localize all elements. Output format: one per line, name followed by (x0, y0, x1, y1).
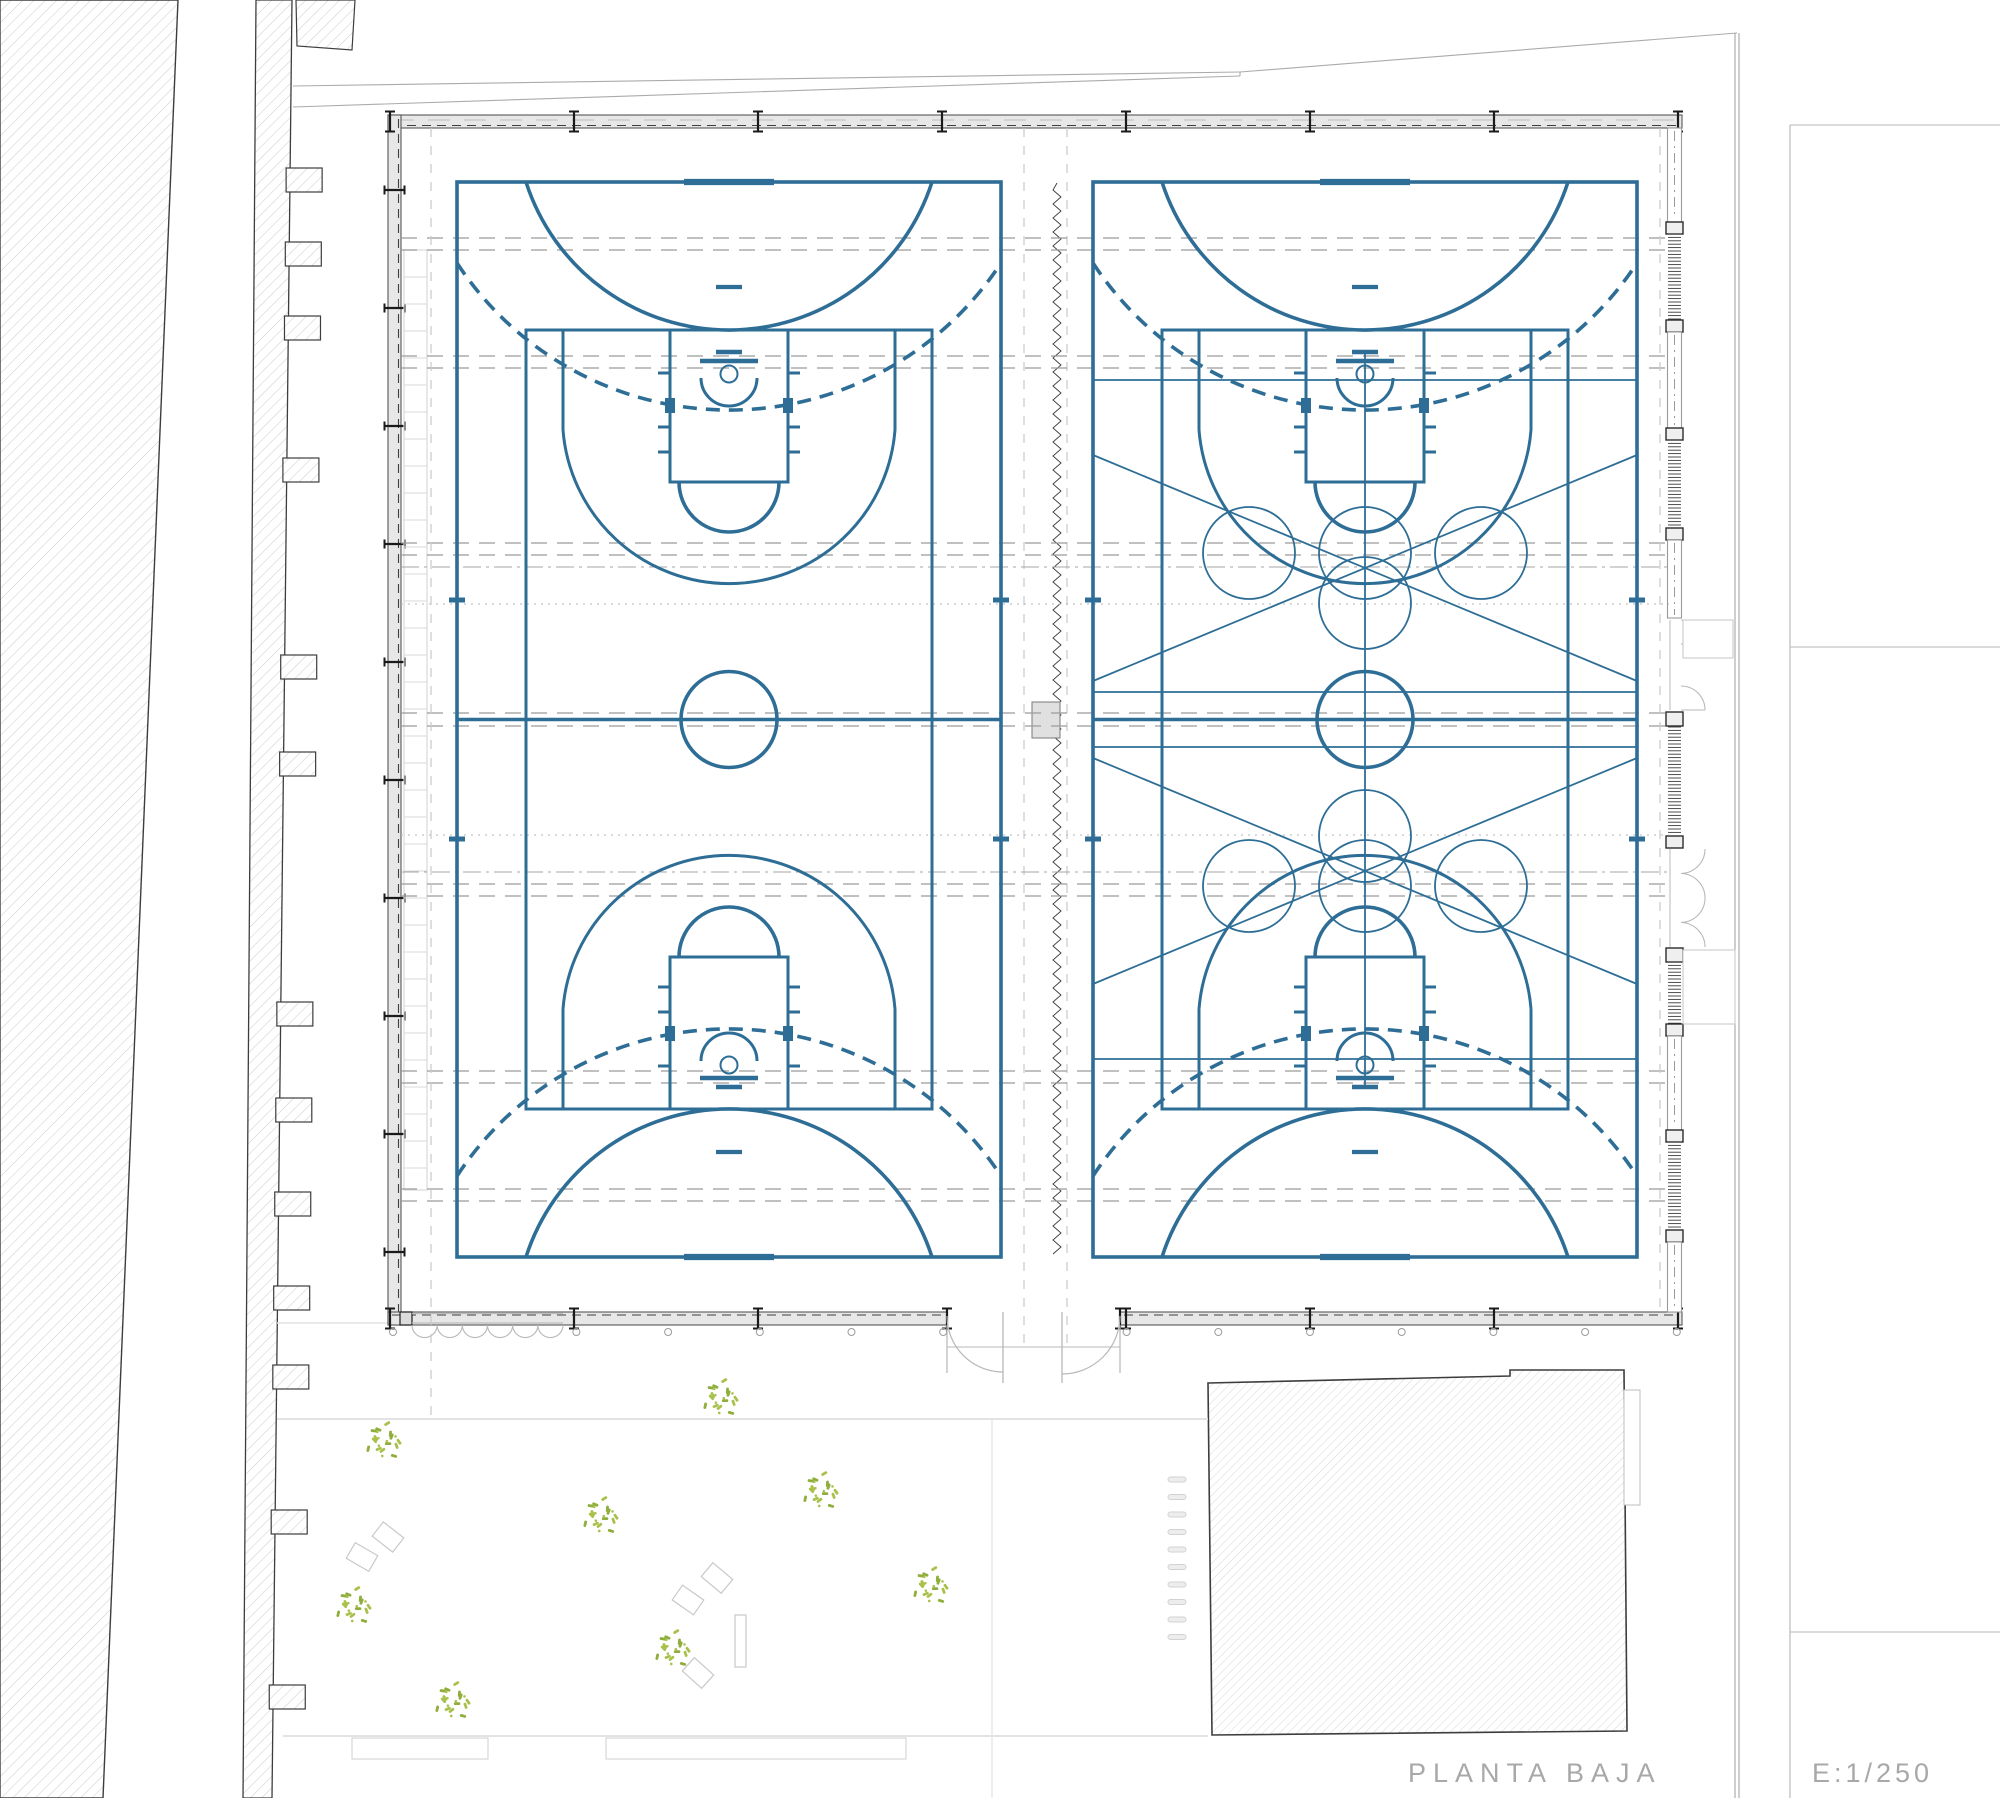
stair-tread-mark (1168, 1600, 1186, 1605)
party-wall-buttress (277, 1002, 313, 1026)
tree-foliage-dot (928, 1600, 931, 1603)
post-base-dot (390, 1329, 397, 1336)
tree-foliage-stroke (722, 1399, 728, 1402)
tree-foliage-stroke (674, 1650, 680, 1653)
tree-foliage-dot (665, 1639, 668, 1642)
tree-foliage-dot (813, 1481, 816, 1484)
goal-area-dome-bottom (1162, 1109, 1568, 1257)
party-wall-buttress (274, 1286, 310, 1310)
tree-foliage-stroke (608, 1529, 615, 1533)
door-swing-arc (1062, 1316, 1120, 1374)
lane-block (1301, 398, 1311, 413)
goal-area-dome-bottom (526, 1109, 932, 1257)
folding-door-leaf-arc (513, 1325, 538, 1338)
tree-foliage-stroke (463, 1702, 468, 1709)
party-wall-buttress (276, 1098, 312, 1122)
tree-foliage-stroke (453, 1681, 460, 1687)
stair-tread-mark (1168, 1617, 1186, 1622)
bench-symbol (372, 1522, 404, 1552)
existing-building-southeast-hatch (1208, 1370, 1627, 1735)
post-base-dot (756, 1329, 763, 1336)
tree-foliage-dot (378, 1444, 381, 1447)
lane-block (1301, 1026, 1311, 1041)
overlay-circle (1203, 840, 1295, 932)
court-hall-west (449, 182, 1009, 1257)
tree-foliage-dot (351, 1620, 354, 1623)
tree-foliage-dot (683, 1643, 686, 1646)
street-edge-line (293, 76, 1240, 107)
tree-foliage-dot (347, 1602, 350, 1605)
bifold-door-arc (1681, 898, 1705, 923)
tree-foliage-dot (713, 1388, 716, 1391)
post-base-dot (1673, 1329, 1680, 1336)
tree-symbol (803, 1471, 839, 1508)
tree-foliage-dot (356, 1605, 359, 1608)
tree-foliage-dot (463, 1695, 466, 1698)
tree-foliage-dot (594, 1512, 597, 1515)
tree-foliage-stroke (394, 1442, 399, 1449)
tree-foliage-stroke (435, 1705, 439, 1712)
tree-foliage-stroke (703, 1402, 707, 1409)
wall-column-block (1666, 320, 1683, 332)
tree-foliage-stroke (913, 1590, 917, 1597)
party-wall-buttress (280, 752, 316, 776)
bleacher-strip (404, 250, 427, 1190)
tree-foliage-stroke (611, 1517, 616, 1524)
overlay-circle (1203, 507, 1295, 599)
tree-foliage-dot (394, 1435, 397, 1438)
tree-foliage-dot (715, 1401, 718, 1404)
tree-foliage-stroke (941, 1587, 946, 1594)
overlay-circle (1435, 840, 1527, 932)
tree-foliage-dot (823, 1490, 826, 1493)
tree-foliage-dot (941, 1580, 944, 1583)
tree-foliage-dot (381, 1455, 384, 1458)
tree-foliage-stroke (680, 1662, 687, 1666)
wall-north (388, 115, 1682, 128)
tree-foliage-dot (718, 1412, 721, 1415)
stair-tread-mark (1168, 1477, 1186, 1482)
post-base-dot (1307, 1329, 1314, 1336)
tree-foliage-stroke (731, 1399, 736, 1406)
bifold-door-arc (1681, 874, 1705, 899)
tree-foliage-dot (666, 1645, 669, 1648)
tree-symbol (366, 1421, 402, 1458)
tree-foliage-dot (446, 1697, 449, 1700)
door-jamb-block (400, 1312, 412, 1325)
plan-title: PLANTA BAJA (1408, 1758, 1662, 1788)
tree-foliage-dot (667, 1652, 670, 1655)
tree-foliage-dot (455, 1700, 458, 1703)
court-hall-east (1085, 182, 1645, 1257)
three-point-arc (563, 855, 895, 1009)
tree-foliage-dot (925, 1589, 928, 1592)
tree-foliage-stroke (354, 1586, 361, 1592)
tree-foliage-dot (611, 1510, 614, 1513)
tree-foliage-dot (377, 1437, 380, 1440)
door-swing-arc (1681, 686, 1705, 710)
tree-foliage-stroke (931, 1566, 938, 1572)
lane-block (783, 1026, 793, 1041)
planta-baja-drawing: PLANTA BAJA E:1/250 (0, 0, 2000, 1798)
stair-tread-mark (1168, 1635, 1186, 1640)
bench-symbol (346, 1543, 378, 1572)
wall-column-block (1666, 222, 1683, 234)
bifold-door-arc (1681, 923, 1705, 948)
tree-foliage-stroke (601, 1496, 608, 1502)
overlay-circle (1435, 507, 1527, 599)
yard-planter (606, 1738, 906, 1759)
yard-planter (352, 1738, 488, 1759)
neighbor-parcel-left-hatch (0, 0, 178, 1798)
stair-tread-mark (1168, 1495, 1186, 1500)
bench-symbol (735, 1615, 746, 1667)
tree-foliage-dot (445, 1691, 448, 1694)
tree-foliage-dot (364, 1600, 367, 1603)
free-throw-semicircle (679, 907, 779, 957)
tree-foliage-stroke (364, 1607, 369, 1614)
lane-block (1419, 398, 1429, 413)
tree-foliage-dot (450, 1715, 453, 1718)
tree-foliage-stroke (361, 1619, 368, 1623)
tree-foliage-stroke (728, 1411, 735, 1415)
street-edge-line (1240, 33, 1737, 72)
post-base-dot (573, 1329, 580, 1336)
tree-foliage-dot (595, 1519, 598, 1522)
tree-foliage-stroke (683, 1650, 688, 1657)
tree-foliage-stroke (336, 1610, 340, 1617)
stair-tread-mark (1168, 1512, 1186, 1517)
tree-foliage-stroke (821, 1471, 828, 1477)
tree-foliage-stroke (602, 1517, 608, 1520)
neighbor-patch-north (296, 0, 355, 50)
post-base-dot (1490, 1329, 1497, 1336)
tree-foliage-stroke (355, 1607, 361, 1610)
party-wall-buttress (285, 242, 321, 266)
wall-column-block (1666, 712, 1683, 726)
tree-foliage-dot (447, 1704, 450, 1707)
yard-trees-benches (336, 1378, 949, 1718)
party-wall-buttress (284, 316, 320, 340)
wall-column-block (1666, 528, 1683, 540)
goal-area-dome-top (1162, 182, 1568, 330)
wall-column-block (1666, 836, 1683, 848)
wall-column-block (1666, 1230, 1683, 1242)
street-edge-line (293, 72, 1240, 86)
stair-tread-mark (1168, 1582, 1186, 1587)
tree-symbol (703, 1378, 739, 1415)
lane-block (783, 398, 793, 413)
party-wall-buttress (286, 168, 322, 192)
tree-foliage-dot (818, 1505, 821, 1508)
tree-foliage-dot (815, 1494, 818, 1497)
tree-foliage-dot (386, 1440, 389, 1443)
bifold-door-arc (1681, 849, 1705, 874)
tree-foliage-stroke (384, 1421, 391, 1427)
post-base-dot (1215, 1329, 1222, 1336)
tree-foliage-stroke (583, 1520, 587, 1527)
tree-foliage-dot (924, 1582, 927, 1585)
bench-symbol (672, 1585, 704, 1615)
wall-column-block (1666, 1024, 1683, 1036)
wall-south-east (1120, 1312, 1682, 1325)
tree-foliage-dot (831, 1485, 834, 1488)
tree-foliage-dot (933, 1585, 936, 1588)
tree-symbol (655, 1629, 691, 1666)
stair-tread-mark (1168, 1530, 1186, 1535)
door-swing-arc (947, 1316, 1003, 1372)
tree-foliage-stroke (655, 1653, 659, 1660)
folding-door-leaf-arc (462, 1325, 487, 1338)
tree-foliage-stroke (460, 1714, 467, 1718)
roof-structure-dashed-lines (401, 128, 1669, 1419)
party-wall-buttress (281, 655, 317, 679)
tree-foliage-dot (348, 1609, 351, 1612)
stair-tread-mark (1168, 1547, 1186, 1552)
post-base-dot (940, 1329, 947, 1336)
tree-foliage-stroke (803, 1495, 807, 1502)
free-throw-semicircle (679, 482, 779, 532)
tree-symbol (913, 1566, 949, 1603)
tree-foliage-dot (376, 1431, 379, 1434)
lane-block (665, 398, 675, 413)
tree-symbol (435, 1681, 471, 1718)
wall-column-block (1666, 1130, 1683, 1142)
party-wall-buttress (269, 1685, 305, 1709)
party-wall-buttress (273, 1365, 309, 1389)
wall-column-block (1666, 948, 1683, 962)
bench-symbol (682, 1658, 713, 1689)
tree-foliage-dot (346, 1596, 349, 1599)
divider-post-block (1032, 702, 1060, 738)
tree-foliage-stroke (385, 1442, 391, 1445)
tree-foliage-dot (593, 1506, 596, 1509)
tree-foliage-stroke (828, 1504, 835, 1508)
tree-foliage-stroke (366, 1445, 370, 1452)
post-base-dot (1582, 1329, 1589, 1336)
tree-foliage-dot (723, 1397, 726, 1400)
post-base-dot (1123, 1329, 1130, 1336)
exterior-landing-slab (1683, 950, 1735, 1024)
folding-door-leaf-arc (538, 1325, 563, 1338)
tree-symbol (336, 1586, 372, 1623)
stair-tread-mark (1168, 1565, 1186, 1570)
folding-door-leaf-arc (488, 1325, 513, 1338)
post-base-dot (848, 1329, 855, 1336)
folding-door-leaf-arc (412, 1325, 437, 1338)
goal-area-dome-top (526, 182, 932, 330)
tree-foliage-stroke (721, 1378, 728, 1384)
three-point-arc (563, 430, 895, 584)
tree-foliage-stroke (831, 1492, 836, 1499)
existing-building-annex (1624, 1390, 1640, 1505)
tree-foliage-stroke (391, 1454, 398, 1458)
plan-scale-label: E:1/250 (1812, 1758, 1933, 1788)
bench-symbol (701, 1563, 732, 1594)
tree-foliage-stroke (673, 1629, 680, 1635)
post-base-dot (1398, 1329, 1405, 1336)
tree-foliage-stroke (932, 1587, 938, 1590)
tree-foliage-dot (714, 1394, 717, 1397)
tree-foliage-stroke (938, 1599, 945, 1603)
tree-symbol (583, 1496, 619, 1533)
tree-foliage-stroke (822, 1492, 828, 1495)
party-wall-buttress (283, 458, 319, 482)
floor-plan-page: PLANTA BAJA E:1/250 (0, 0, 2000, 1798)
lane-block (1419, 1026, 1429, 1041)
party-wall-buttress (271, 1510, 307, 1534)
wall-column-block (1666, 428, 1683, 440)
tree-foliage-stroke (454, 1702, 460, 1705)
tree-foliage-dot (814, 1487, 817, 1490)
party-wall-buttress (275, 1192, 311, 1216)
tree-foliage-dot (675, 1648, 678, 1651)
exterior-landing-slab (1683, 620, 1733, 658)
post-base-dot (665, 1329, 672, 1336)
tree-foliage-dot (731, 1392, 734, 1395)
folding-door-leaf-arc (437, 1325, 462, 1338)
tree-foliage-dot (603, 1515, 606, 1518)
tree-foliage-dot (598, 1530, 601, 1533)
tree-foliage-dot (670, 1663, 673, 1666)
tree-foliage-dot (923, 1576, 926, 1579)
lane-block (665, 1026, 675, 1041)
